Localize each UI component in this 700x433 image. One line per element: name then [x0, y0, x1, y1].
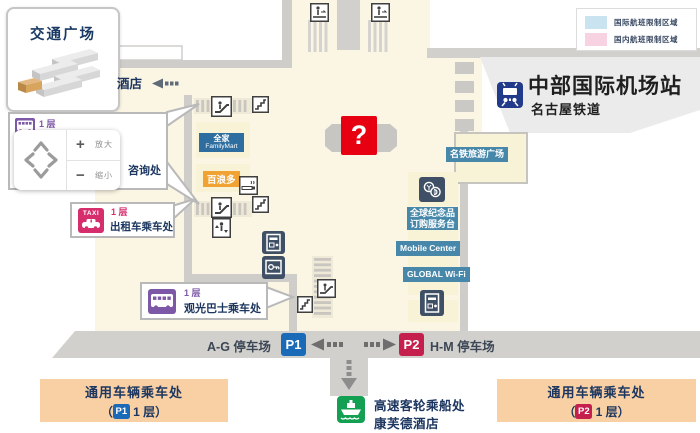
traffic-plaza-illustration — [18, 49, 110, 105]
sightseeing-bus-callout: 1 层 观光巴士乘车处 — [140, 282, 268, 320]
station-title: 中部国际机场站 — [528, 70, 682, 100]
pronto-label: 百浪多 — [203, 171, 240, 187]
meitetsu-plaza-label: 名铁旅游广场 — [446, 147, 508, 162]
souvenir-desk-label: 全球纪念品 订购服务台 — [407, 207, 458, 230]
moving-walkway-icon — [371, 3, 390, 22]
moving-walkway-icon — [310, 3, 329, 22]
legend: 国际航班限制区域 国内航班限制区域 — [576, 8, 697, 51]
escalator-icon — [211, 96, 232, 117]
hotel-label: 酒店 — [117, 73, 142, 92]
p1-badge: P1 — [281, 333, 306, 356]
sightseeing-bus-label: 观光巴士乘车处 — [184, 300, 261, 316]
zoom-out-button[interactable]: − 缩小 — [67, 160, 120, 191]
legend-row-domestic: 国内航班限制区域 — [585, 31, 696, 48]
parking-left-label: A-G 停车场 — [207, 336, 271, 355]
arrow-down-icon — [339, 360, 359, 392]
taxi-tag: TAXI — [83, 210, 99, 218]
ferry-label: 高速客轮乘船处 — [374, 395, 465, 414]
hotel-arrow-left-icon — [152, 77, 182, 90]
pickup-right-post: 1 层） — [592, 403, 629, 420]
p2-badge: P2 — [399, 333, 424, 356]
pan-up-button[interactable] — [35, 143, 47, 150]
zoom-in-button[interactable]: + 放大 — [67, 130, 120, 160]
pickup-right-title: 通用车辆乘车处 — [547, 382, 645, 401]
atm-icon — [420, 290, 444, 316]
p2-badge-small: P2 — [575, 404, 592, 419]
familymart-label: 全家 FamilyMart — [199, 133, 244, 152]
plus-icon: + — [76, 137, 91, 152]
pickup-zone-left: 通用车辆乘车处 （ P1 1 层） — [40, 379, 228, 422]
pan-pad — [14, 130, 66, 190]
elevator-icon — [212, 218, 231, 238]
escalator-icon — [211, 197, 232, 218]
global-wifi-label: GLOBAL Wi-Fi — [403, 267, 470, 282]
airport-access-map: 交通广场 酒店 国际航班限制区域 国内航班限制区域 — [0, 0, 700, 433]
pan-down-button[interactable] — [35, 170, 47, 177]
sightseeing-bus-floor: 1 层 — [184, 288, 201, 299]
hotel-building — [118, 46, 182, 60]
minus-icon: − — [76, 168, 91, 183]
mobile-center-label: Mobile Center — [396, 241, 460, 256]
souvenir-line2: 订购服务台 — [410, 219, 455, 230]
walkway-divider — [337, 0, 360, 50]
familymart-cn: 全家 — [199, 134, 244, 143]
taxi-icon: TAXI — [78, 208, 104, 233]
pickup-left-title: 通用车辆乘车处 — [85, 382, 183, 401]
escalator-icon — [317, 279, 336, 298]
p1-badge-small: P1 — [113, 404, 130, 419]
currency-exchange-icon — [419, 177, 445, 202]
atm-icon — [262, 231, 285, 254]
pickup-zone-right: 通用车辆乘车处 （ P2 1 层） — [497, 379, 696, 422]
zoom-in-label: 放大 — [95, 139, 113, 150]
bus-stop-floor: 1 层 — [39, 119, 56, 130]
station-subtitle: 名古屋铁道 — [531, 99, 601, 118]
legend-label-domestic: 国内航班限制区域 — [614, 34, 678, 45]
legend-row-international: 国际航班限制区域 — [585, 14, 696, 31]
traffic-plaza-card: 交通广场 — [6, 7, 120, 112]
arrow-right-icon — [362, 337, 396, 352]
smoking-area-icon — [239, 176, 258, 195]
legend-swatch-international — [585, 16, 607, 29]
map-nav-widget: + 放大 − 缩小 — [14, 130, 120, 190]
familymart-en: FamilyMart — [199, 143, 244, 151]
souvenir-line1: 全球纪念品 — [410, 208, 455, 219]
arrow-left-icon — [311, 337, 345, 352]
train-icon — [497, 82, 523, 108]
parking-right-label: H-M 停车场 — [430, 336, 495, 355]
coin-locker-icon — [262, 256, 285, 279]
pickup-left-pre: （ — [101, 403, 113, 420]
taxi-stand-label: 出租车乘车处 — [110, 219, 173, 234]
comfort-hotel-label: 康芙德酒店 — [374, 413, 439, 432]
information-desk-label: 咨询处 — [128, 162, 161, 178]
taxi-floor: 1 层 — [111, 207, 128, 218]
bus-icon — [148, 289, 176, 314]
traffic-plaza-title: 交通广场 — [8, 23, 118, 44]
pan-right-button[interactable] — [49, 154, 56, 166]
taxi-stand-callout: TAXI 1 层 出租车乘车处 — [70, 202, 175, 238]
help-mark: ? — [351, 120, 368, 151]
stairs-icon — [252, 96, 269, 113]
zoom-out-label: 缩小 — [95, 170, 113, 181]
pickup-right-pre: （ — [563, 403, 575, 420]
stairs-icon — [297, 296, 313, 313]
legend-swatch-domestic — [585, 33, 607, 46]
ferry-icon — [337, 396, 365, 423]
help-point-icon: ? — [341, 116, 377, 155]
pickup-left-post: 1 层） — [130, 403, 167, 420]
stairs-icon — [252, 196, 269, 213]
legend-label-international: 国际航班限制区域 — [614, 17, 678, 28]
pan-left-button[interactable] — [26, 154, 33, 166]
